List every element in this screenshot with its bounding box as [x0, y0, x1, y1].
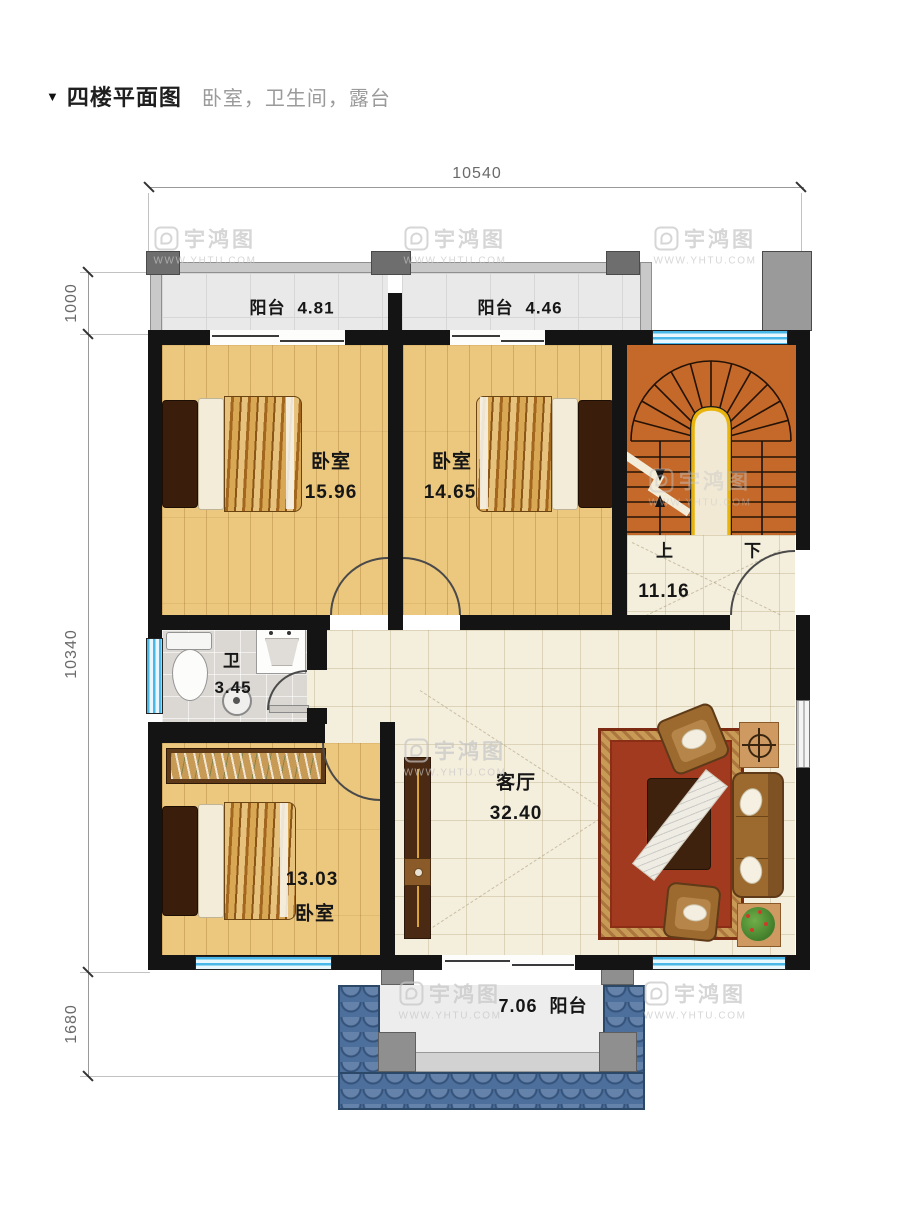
- toilet-tank: [166, 632, 212, 650]
- side-table-clock: [739, 722, 779, 768]
- window-living: [652, 956, 786, 970]
- door-line: [212, 335, 279, 337]
- terrace-column: [378, 1032, 416, 1072]
- dimension-line-left: [88, 272, 89, 1076]
- wall: [388, 345, 403, 630]
- terrace-column: [599, 1032, 637, 1072]
- yhtu-logo-icon: [644, 982, 668, 1006]
- coffee-table: [647, 778, 711, 870]
- wall: [148, 330, 162, 640]
- wall: [148, 330, 210, 345]
- watermark: 宇鸿图 WWW.YHTU.COM: [643, 979, 746, 1022]
- tv-cabinet: [404, 858, 431, 886]
- terrace-column: [381, 968, 414, 985]
- wall: [796, 768, 810, 970]
- plan-heading: 四楼平面图: [67, 80, 182, 112]
- sliding-door-balcony-b: [450, 330, 545, 345]
- terrace-roof-bottom: [338, 1072, 645, 1110]
- armchair: [662, 881, 722, 942]
- wall: [796, 330, 810, 550]
- column: [371, 251, 411, 275]
- label-bedroom-b: 卧室: [432, 447, 472, 474]
- corner-column: [762, 251, 812, 331]
- terrace-column: [601, 968, 634, 985]
- column: [146, 251, 180, 275]
- window-stairs: [652, 330, 788, 345]
- dim-left-middle-value: 10340: [63, 629, 81, 679]
- area-bedroom-b: 14.65: [424, 482, 477, 504]
- dimension-line-top: [150, 187, 804, 188]
- dim-left-lower-value: 1680: [63, 1004, 81, 1044]
- extension-line: [801, 193, 802, 253]
- terrace-rail: [415, 1052, 601, 1072]
- label-bathroom: 卫: [223, 647, 241, 672]
- label-living-room: 客厅: [496, 768, 536, 795]
- page-title: ▼ 四楼平面图 卧室，卫生间，露台: [46, 80, 391, 112]
- wardrobe-bedroom-c: [166, 748, 326, 784]
- plan-subtitle: 卧室，卫生间，露台: [202, 82, 391, 111]
- extension-line: [80, 1076, 340, 1077]
- yhtu-logo-icon: [404, 227, 428, 251]
- label-bedroom-a: 卧室: [311, 447, 351, 474]
- wall: [148, 615, 330, 630]
- wall: [148, 722, 162, 970]
- door-line: [452, 335, 500, 337]
- label-stairs-down: 下: [744, 537, 762, 562]
- label-stairs-up: 上: [656, 537, 674, 562]
- wall: [627, 615, 730, 630]
- area-living-room: 32.40: [490, 803, 543, 825]
- sliding-door-terrace: [442, 955, 575, 970]
- label-bedroom-c: 卧室: [295, 899, 335, 926]
- extension-line: [148, 193, 149, 251]
- wall: [796, 615, 810, 700]
- label-balcony-top-right: 阳台4.46: [477, 294, 562, 319]
- floor-plan-page: ▼ 四楼平面图 卧室，卫生间，露台 10540 1000 10340 1680: [0, 0, 910, 1228]
- area-bathroom: 3.45: [214, 678, 251, 698]
- wall: [380, 722, 395, 970]
- yhtu-logo-icon: [154, 227, 178, 251]
- sink: [256, 626, 306, 674]
- wall: [307, 630, 327, 670]
- bed-bedroom-c: [162, 802, 294, 918]
- balcony-side-wall: [640, 262, 652, 332]
- window-living-right: [796, 700, 810, 768]
- watermark: 宇鸿图 WWW.YHTU.COM: [653, 224, 756, 267]
- dim-top-value: 10540: [452, 165, 502, 183]
- wall: [545, 330, 652, 345]
- wall: [345, 330, 450, 345]
- plant-table: [737, 903, 781, 947]
- door-line: [501, 340, 544, 342]
- dim-left-upper-value: 1000: [63, 283, 81, 323]
- door-line: [512, 964, 574, 966]
- wall: [612, 345, 627, 630]
- window-bathroom: [146, 638, 163, 714]
- sliding-door-balcony-a: [210, 330, 345, 345]
- wall: [460, 615, 627, 630]
- balcony-divider-wall: [388, 293, 402, 330]
- bed-bedroom-a: [162, 396, 300, 510]
- column: [606, 251, 640, 275]
- bed-bedroom-b: [476, 396, 612, 510]
- label-balcony-top-left: 阳台4.81: [249, 294, 334, 319]
- tv-console: [404, 757, 431, 939]
- area-stair-hall: 11.16: [638, 581, 690, 603]
- label-balcony-bottom: 7.06阳台: [498, 992, 587, 1018]
- watermark: 宇鸿图 WWW.YHTU.COM: [403, 224, 506, 267]
- area-bedroom-a: 15.96: [305, 482, 358, 504]
- staircase: [627, 345, 796, 540]
- door-line: [280, 340, 344, 342]
- wall: [148, 722, 325, 743]
- sofa: [732, 772, 784, 898]
- yhtu-logo-icon: [654, 227, 678, 251]
- door-line: [445, 960, 510, 962]
- area-bedroom-c: 13.03: [286, 869, 339, 891]
- triangle-marker-icon: ▼: [46, 89, 59, 104]
- window-bedroom-c: [195, 956, 332, 970]
